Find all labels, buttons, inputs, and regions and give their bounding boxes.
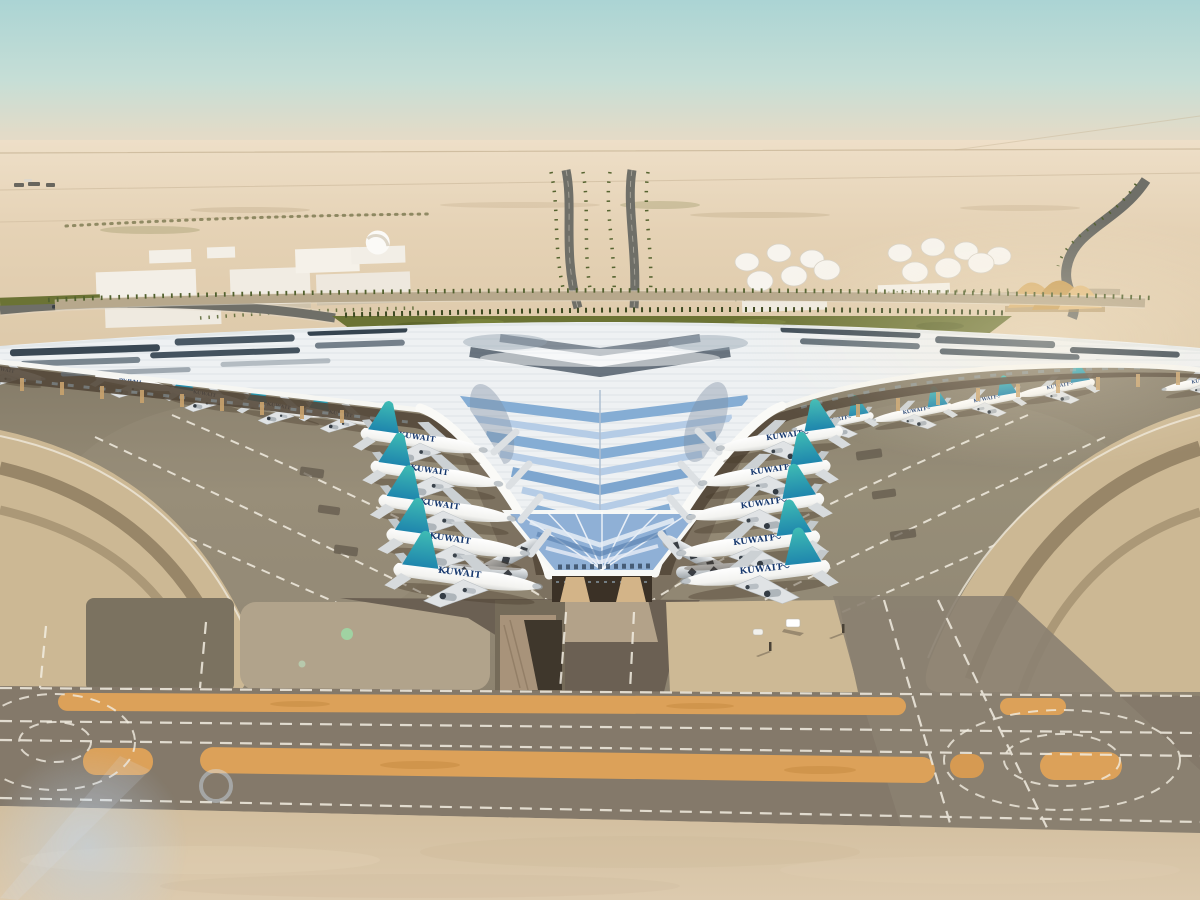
service-vehicle	[786, 619, 800, 627]
sand-wedge-mid	[666, 600, 858, 692]
service-vehicle	[753, 629, 763, 635]
marker-pole	[842, 624, 845, 633]
marker-pole	[769, 642, 772, 651]
airport-rendering: KUWAIT KUWAIT	[0, 0, 1200, 900]
entrance-colonnade	[552, 576, 652, 602]
taxilane-dark	[86, 598, 234, 692]
